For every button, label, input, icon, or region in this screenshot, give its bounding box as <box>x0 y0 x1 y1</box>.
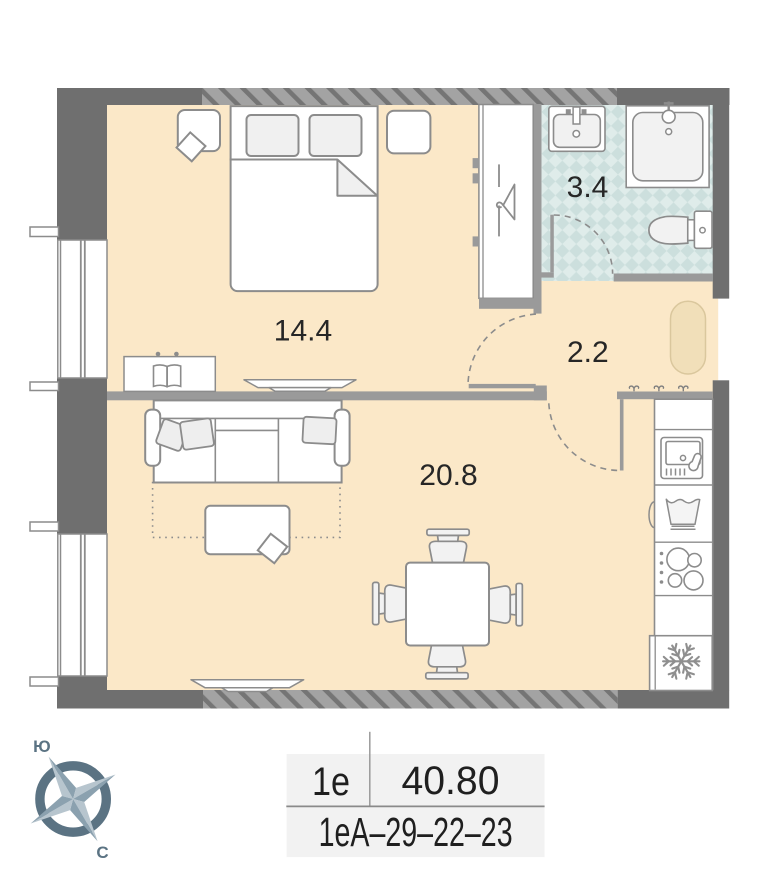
svg-text:Ю: Ю <box>33 737 51 756</box>
svg-text:40.80: 40.80 <box>402 759 500 803</box>
svg-text:1eA–29–22–23: 1eA–29–22–23 <box>319 809 513 855</box>
svg-text:С: С <box>96 843 108 862</box>
svg-text:20.8: 20.8 <box>419 459 477 492</box>
svg-text:1e: 1e <box>312 760 350 804</box>
svg-text:3.4: 3.4 <box>567 171 609 204</box>
svg-text:2.2: 2.2 <box>567 336 609 369</box>
svg-text:14.4: 14.4 <box>274 315 332 348</box>
